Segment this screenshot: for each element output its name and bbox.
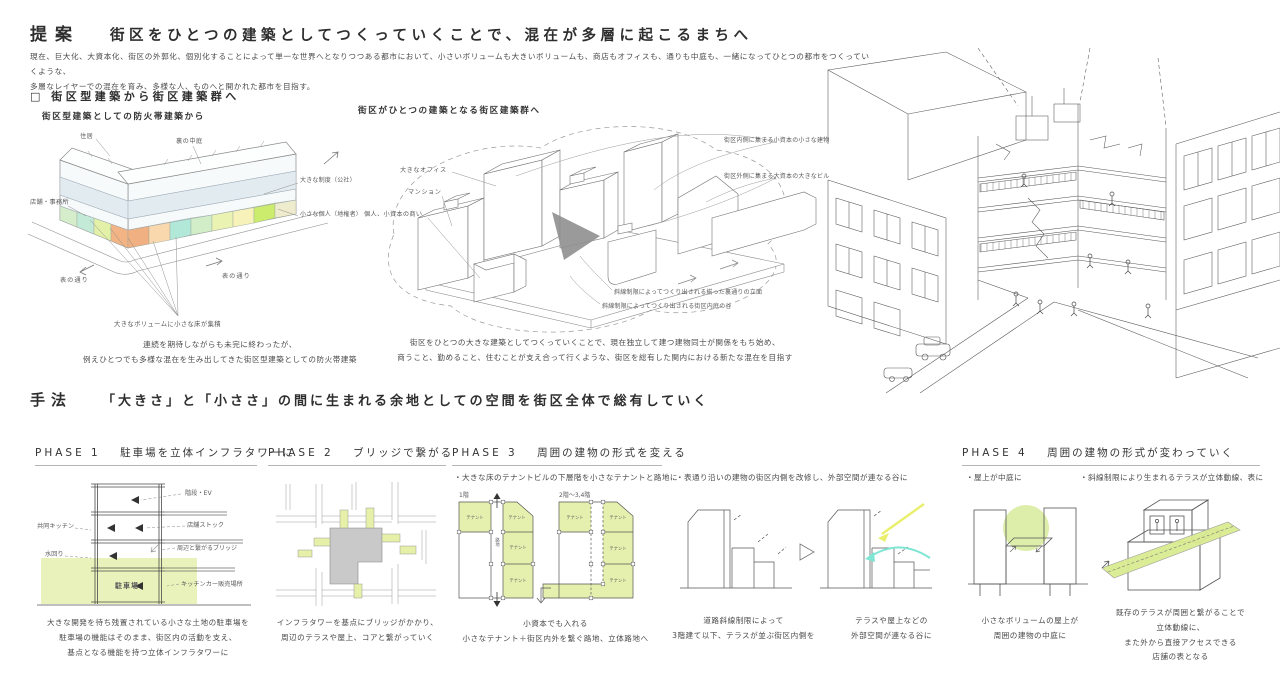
phase1-caption-line2: 駐車場の機能はそのまま、街区内の活動を支え、 <box>28 631 268 646</box>
phase3-caption-b2: テラスや屋上などの 外部空間が連なる谷に <box>824 614 959 644</box>
phase3-bullet-b: ・表通り沿いの建物の街区内側を改修し、外部空間が連なる谷に <box>676 472 908 483</box>
tenant-cell: テナント <box>566 515 583 521</box>
after-caption-line2: 商うこと、勤めること、住むことが支え合って行くような、街区を総有した関内における… <box>385 351 805 366</box>
phase3-caption-b1: 道路斜線制限によって 3階建て以下、テラスが並ぶ街区内側を <box>656 614 831 644</box>
phase4-caption-b-line2: 立体動線に、 <box>1088 621 1273 636</box>
phase2-caption: インフラタワーを基点にブリッジがかかり、 周辺のテラスや屋上、コアと繋がっていく <box>260 616 455 646</box>
section-after <box>820 510 932 588</box>
before-caption-line1: 連続を期待しながらも未完に終わったが、 <box>60 338 380 353</box>
infra-tower-block <box>330 528 382 584</box>
phase3-caption-b1-line2: 3階建て以下、テラスが並ぶ街区内側を <box>656 629 831 644</box>
phase4-courtyard-diagram <box>966 492 1091 604</box>
after-diagram: 大きなオフィス マンション 個人、小資本の商い 街区内側に集まる小資本の小さな建… <box>356 114 861 340</box>
phase1-header: PHASE 1 駐車場を立体インフラタワーに <box>35 445 257 466</box>
label-stairs-ev: 階段・EV <box>185 489 212 497</box>
label-kitchen-car: キッチンカー販売場所 <box>181 580 243 588</box>
before-caption-line2: 例えひとつでも多様な混在を生み出してきた街区型建築としての防火帯建築 <box>60 353 380 368</box>
method-label: 手法 <box>30 389 72 410</box>
label-inner-capital: 街区内側に集まる小資本の小さな建物 <box>724 136 829 144</box>
wind-arrow <box>865 547 930 562</box>
phase2-number: PHASE 2 <box>268 447 334 459</box>
terrace-ramp <box>1102 522 1240 578</box>
phase4-caption-a-line2: 周囲の建物の中庭に <box>960 629 1100 644</box>
label-parking: 駐車場 <box>115 581 139 590</box>
phase4-number: PHASE 4 <box>962 447 1028 459</box>
label-setback-facade: 斜線制限によってつくり出される揃った裏通りの立面 <box>614 288 762 296</box>
phase4-bullet-a: ・屋上が中庭に <box>966 472 1022 483</box>
label-kitchen: 共同キッチン <box>37 522 74 530</box>
phase4-caption-a: 小さなボリュームの屋上が 周囲の建物の中庭に <box>960 614 1100 644</box>
proposal-title: 街区をひとつの建築としてつくっていくことで、混在が多層に起こるまちへ <box>110 24 753 45</box>
phase3-section-diagrams <box>672 492 932 600</box>
streets <box>886 280 1258 393</box>
phase3-caption-a-line1: 小資本でも入れる <box>448 617 663 632</box>
bridge-arrow <box>151 544 159 552</box>
phase2-diagram <box>272 480 440 608</box>
label-courtyard: 裏の中庭 <box>176 137 203 145</box>
phase3-caption-a: 小資本でも入れる 小さなテナント＋街区内外を繋ぐ路地、立体路地へ <box>448 617 663 647</box>
parking-green-zone <box>41 558 197 604</box>
plan-1f: テナント テナント テナント テナント 路地 <box>457 493 535 607</box>
phase3-number: PHASE 3 <box>452 447 518 459</box>
label-water: 水回り <box>45 550 64 558</box>
phase3-plans: 1階 2階〜3,4階 <box>455 488 655 614</box>
plan1-label: 1階 <box>459 491 469 499</box>
right-building-windows <box>1176 112 1280 378</box>
tenant-cell: テナント <box>609 578 626 584</box>
label-accumulation: 大きなボリュームに小さな床が集積 <box>114 319 221 328</box>
phase4-caption-b-line3: また外から直接アクセスできる <box>1088 636 1273 651</box>
phase1-number: PHASE 1 <box>35 447 101 459</box>
phase3-bullet-a: ・大きな床のテナントビルの下層階を小さなテナントと路地に <box>454 472 678 483</box>
alley-arrows <box>494 493 501 607</box>
phase3-header: PHASE 3 周囲の建物の形式を変える <box>452 445 662 466</box>
cars <box>884 337 950 382</box>
section-subheading: □ 街区型建築から街区建築群へ <box>30 88 240 104</box>
proposal-body-line1: 現在、巨大化、大資本化、街区の外郭化、個別化することによって単一な世界へとなりつ… <box>30 50 875 80</box>
phase4-title: 周囲の建物の形式が変わっていく <box>1047 447 1234 459</box>
building-boxes <box>418 134 816 302</box>
proposal-label: 提案 <box>30 20 80 45</box>
phase4-terrace-diagram <box>1100 490 1260 606</box>
phase1-caption-line1: 大きな開発を待ち残置されている小さな土地の駐車場を <box>28 616 268 631</box>
label-institution: 大きな制度（公社） <box>300 176 356 184</box>
phase4-caption-a-line1: 小さなボリュームの屋上が <box>960 614 1100 629</box>
left-building-windows <box>828 180 946 344</box>
foreground-building-topleft <box>828 52 1026 180</box>
label-setback-valley: 斜線制限によってつくり出される街区内庭の谷 <box>602 302 732 310</box>
method-header: 手法 「大きさ」と「小ささ」の間に生まれる余地としての空間を街区全体で総有してい… <box>30 389 709 410</box>
phase4-caption-b-line4: 店舗の表となる <box>1088 650 1273 665</box>
phase4-caption-b: 既存のテラスが周囲と繋がることで 立体動線に、 また外から直接アクセスできる 店… <box>1088 606 1273 665</box>
phase3-caption-a-line2: 小さなテナント＋街区内外を繋ぐ路地、立体路地へ <box>448 632 663 647</box>
phase2-caption-line2: 周辺のテラスや屋上、コアと繋がっていく <box>260 631 455 646</box>
transform-arrow <box>800 544 814 560</box>
phase3-caption-b2-line1: テラスや屋上などの <box>824 614 959 629</box>
presentation-board: 提案 街区をひとつの建築としてつくっていくことで、混在が多層に起こるまちへ 現在… <box>0 0 1280 677</box>
label-shop-office: 店舗・事務所 <box>30 198 69 206</box>
figures-in-windows <box>1155 519 1178 531</box>
phase4-caption-b-line1: 既存のテラスが周囲と繋がることで <box>1088 606 1273 621</box>
phase2-header: PHASE 2 ブリッジで繋がる <box>268 445 446 466</box>
tenant-cell: テナント <box>609 515 626 521</box>
label-bridge: 周辺と繋がるブリッジ <box>177 544 237 552</box>
phase1-diagram: 共同キッチン 水回り 階段・EV 店舗ストック 周辺と繋がるブリッジ キッチンカ… <box>35 474 260 612</box>
alley-label: 路地 <box>495 536 500 546</box>
method-title: 「大きさ」と「小ささ」の間に生まれる余地としての空間を街区全体で総有していく <box>102 390 709 409</box>
label-street-right: 表の通り <box>222 272 251 280</box>
perspective-drawing <box>828 48 1280 393</box>
after-caption: 街区をひとつの大きな建築としてつくっていくことで、現在独立して建つ建物同士が関係… <box>385 336 805 366</box>
label-outer-capital: 街区外側に集まる大資本の大きなビル <box>724 172 829 180</box>
phase1-caption-line3: 基点となる機能を持つ立体インフラタワーに <box>28 646 268 661</box>
proposal-header: 提案 街区をひとつの建築としてつくっていくことで、混在が多層に起こるまちへ <box>30 20 753 45</box>
phase4-bullet-b: ・斜線制限により生まれるテラスが立体動線、表に <box>1080 472 1264 483</box>
section-before <box>680 510 792 588</box>
phase3-caption-b1-line1: 道路斜線制限によって <box>656 614 831 629</box>
tenant-cell: テナント <box>508 515 525 521</box>
phase4-header: PHASE 4 周囲の建物の形式が変わっていく <box>962 445 1260 466</box>
rooftop-courtyard <box>1003 505 1049 551</box>
phase2-caption-line1: インフラタワーを基点にブリッジがかかり、 <box>260 616 455 631</box>
plan-upper: テナント テナント テナント テナント <box>537 500 635 603</box>
after-caption-line1: 街区をひとつの大きな建築としてつくっていくことで、現在独立して建つ建物同士が関係… <box>385 336 805 351</box>
phase3-caption-b2-line2: 外部空間が連なる谷に <box>824 629 959 644</box>
before-diagram: 住居 裏の中庭 店舗・事務所 大きな制度（公社） 小さな個人（地権者） 表の通り… <box>28 120 363 342</box>
tenant-cell: テナント <box>509 545 526 551</box>
light-arrow <box>878 504 924 542</box>
label-individual: 小さな個人（地権者） <box>300 210 362 218</box>
phase3-title: 周囲の建物の形式を変える <box>537 447 687 459</box>
tenant-cell: テナント <box>509 578 526 584</box>
label-small-business: 個人、小資本の商い <box>364 210 422 218</box>
tenant-cell: テナント <box>466 515 483 521</box>
plan2-label: 2階〜3,4階 <box>559 491 590 499</box>
people-figures <box>1013 174 1151 318</box>
label-residence: 住居 <box>80 132 93 140</box>
phase1-caption: 大きな開発を待ち残置されている小さな土地の駐車場を 駐車場の機能はそのまま、街区… <box>28 616 268 660</box>
label-stock: 店舗ストック <box>187 521 224 529</box>
phase2-title: ブリッジで繋がる <box>353 447 453 459</box>
label-office: 大きなオフィス <box>400 166 447 174</box>
label-street-left: 表の通り <box>60 276 89 284</box>
tenant-cell: テナント <box>609 546 626 552</box>
before-caption: 連続を期待しながらも未完に終わったが、 例えひとつでも多様な混在を生み出してきた… <box>60 338 380 368</box>
label-mansion: マンション <box>408 189 441 196</box>
center-cluster <box>978 48 1166 300</box>
